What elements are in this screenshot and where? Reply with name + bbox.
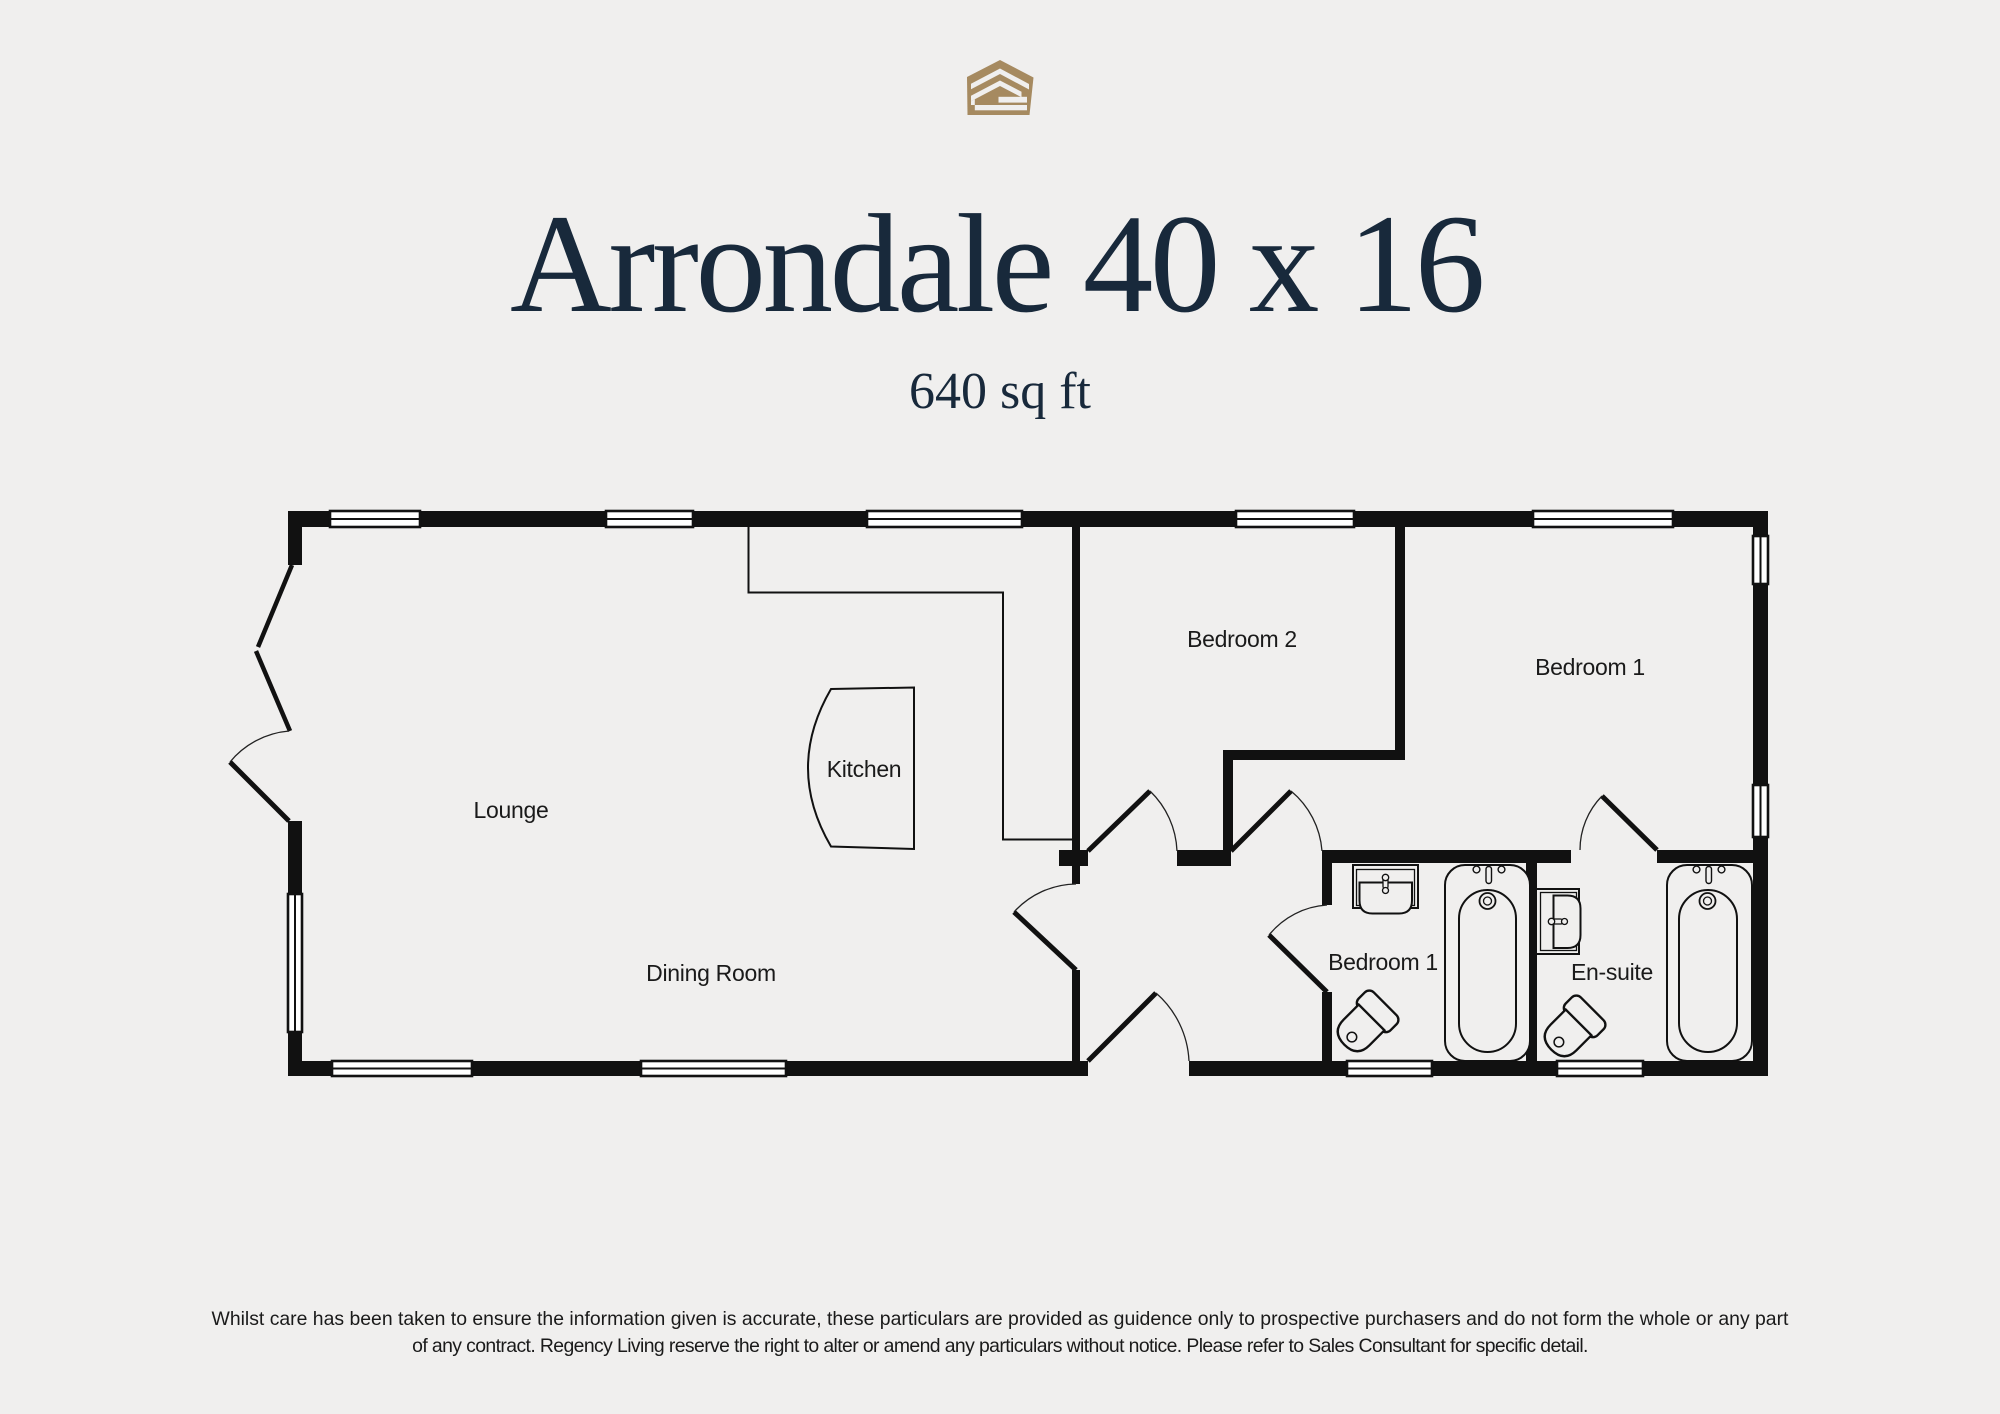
svg-text:Bedroom 2: Bedroom 2 — [1187, 626, 1297, 652]
svg-text:Whilst care has been taken to: Whilst care has been taken to ensure the… — [212, 1308, 1790, 1330]
svg-text:Bedroom 1: Bedroom 1 — [1328, 949, 1438, 975]
svg-text:Arrondale 40 x 16: Arrondale 40 x 16 — [510, 186, 1482, 342]
svg-text:En-suite: En-suite — [1571, 959, 1653, 985]
svg-text:of any contract. Regency Livin: of any contract. Regency Living reserve … — [412, 1335, 1588, 1357]
svg-text:Dining Room: Dining Room — [646, 960, 776, 986]
svg-text:640 sq ft: 640 sq ft — [909, 363, 1092, 420]
svg-text:Kitchen: Kitchen — [827, 756, 902, 782]
svg-text:Lounge: Lounge — [474, 797, 549, 823]
svg-text:Bedroom 1: Bedroom 1 — [1535, 654, 1645, 680]
